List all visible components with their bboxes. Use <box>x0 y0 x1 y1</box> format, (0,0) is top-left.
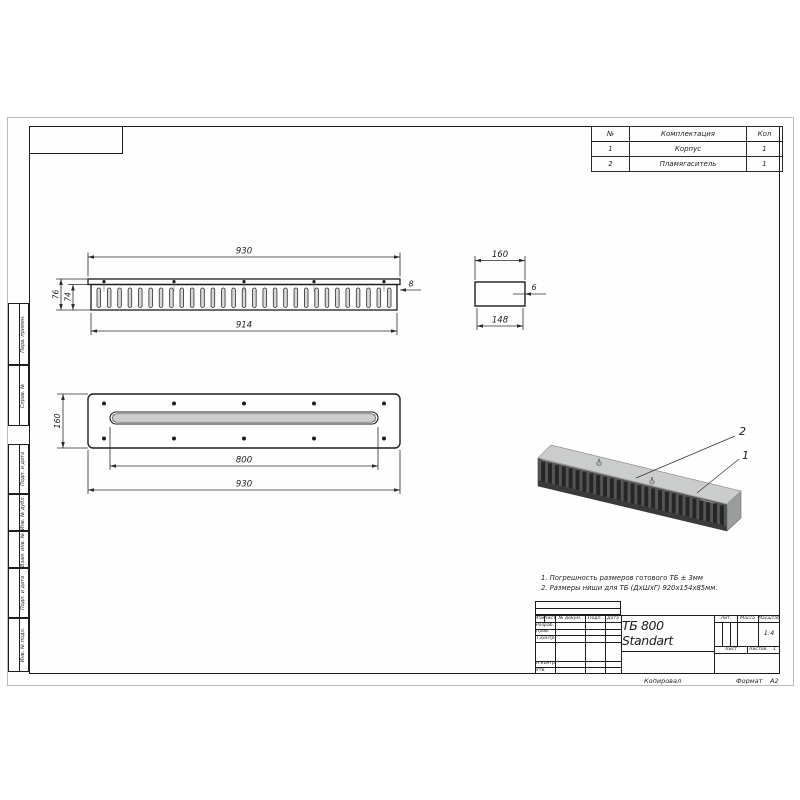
side-dim-width-outer: 160 <box>492 250 508 260</box>
plan-view: 160 800 930 <box>53 394 400 494</box>
plan-dim-width: 930 <box>236 480 252 490</box>
dim-6 <box>513 292 546 296</box>
side-dim-wall: 6 <box>531 283 536 292</box>
plan-dim-slot: 800 <box>236 456 252 466</box>
plan-dim-depth: 160 <box>53 413 62 428</box>
drawing-page: № Комплектация Кол 1 Корпус 1 2 Пламягас… <box>0 0 800 800</box>
dim-8 <box>400 288 421 292</box>
front-view-screws <box>103 281 385 292</box>
iso-view: 2 1 <box>538 425 749 531</box>
front-view: 930 914 76 <box>52 247 422 336</box>
side-dim-width-inner: 148 <box>492 316 509 326</box>
plan-slot-hatch <box>113 414 375 421</box>
drawing-views: 930 914 76 <box>0 0 800 800</box>
front-dim-height-outer: 76 <box>52 290 61 300</box>
callout-flame-arrester: 2 <box>739 425 746 438</box>
front-dim-height-inner: 74 <box>64 292 73 302</box>
front-dim-plate: 8 <box>408 280 413 289</box>
front-dim-width-outer: 930 <box>236 247 252 257</box>
side-view: 160 148 6 <box>475 250 546 330</box>
callout-body: 1 <box>742 449 749 462</box>
front-dim-width-inner: 914 <box>236 321 252 331</box>
